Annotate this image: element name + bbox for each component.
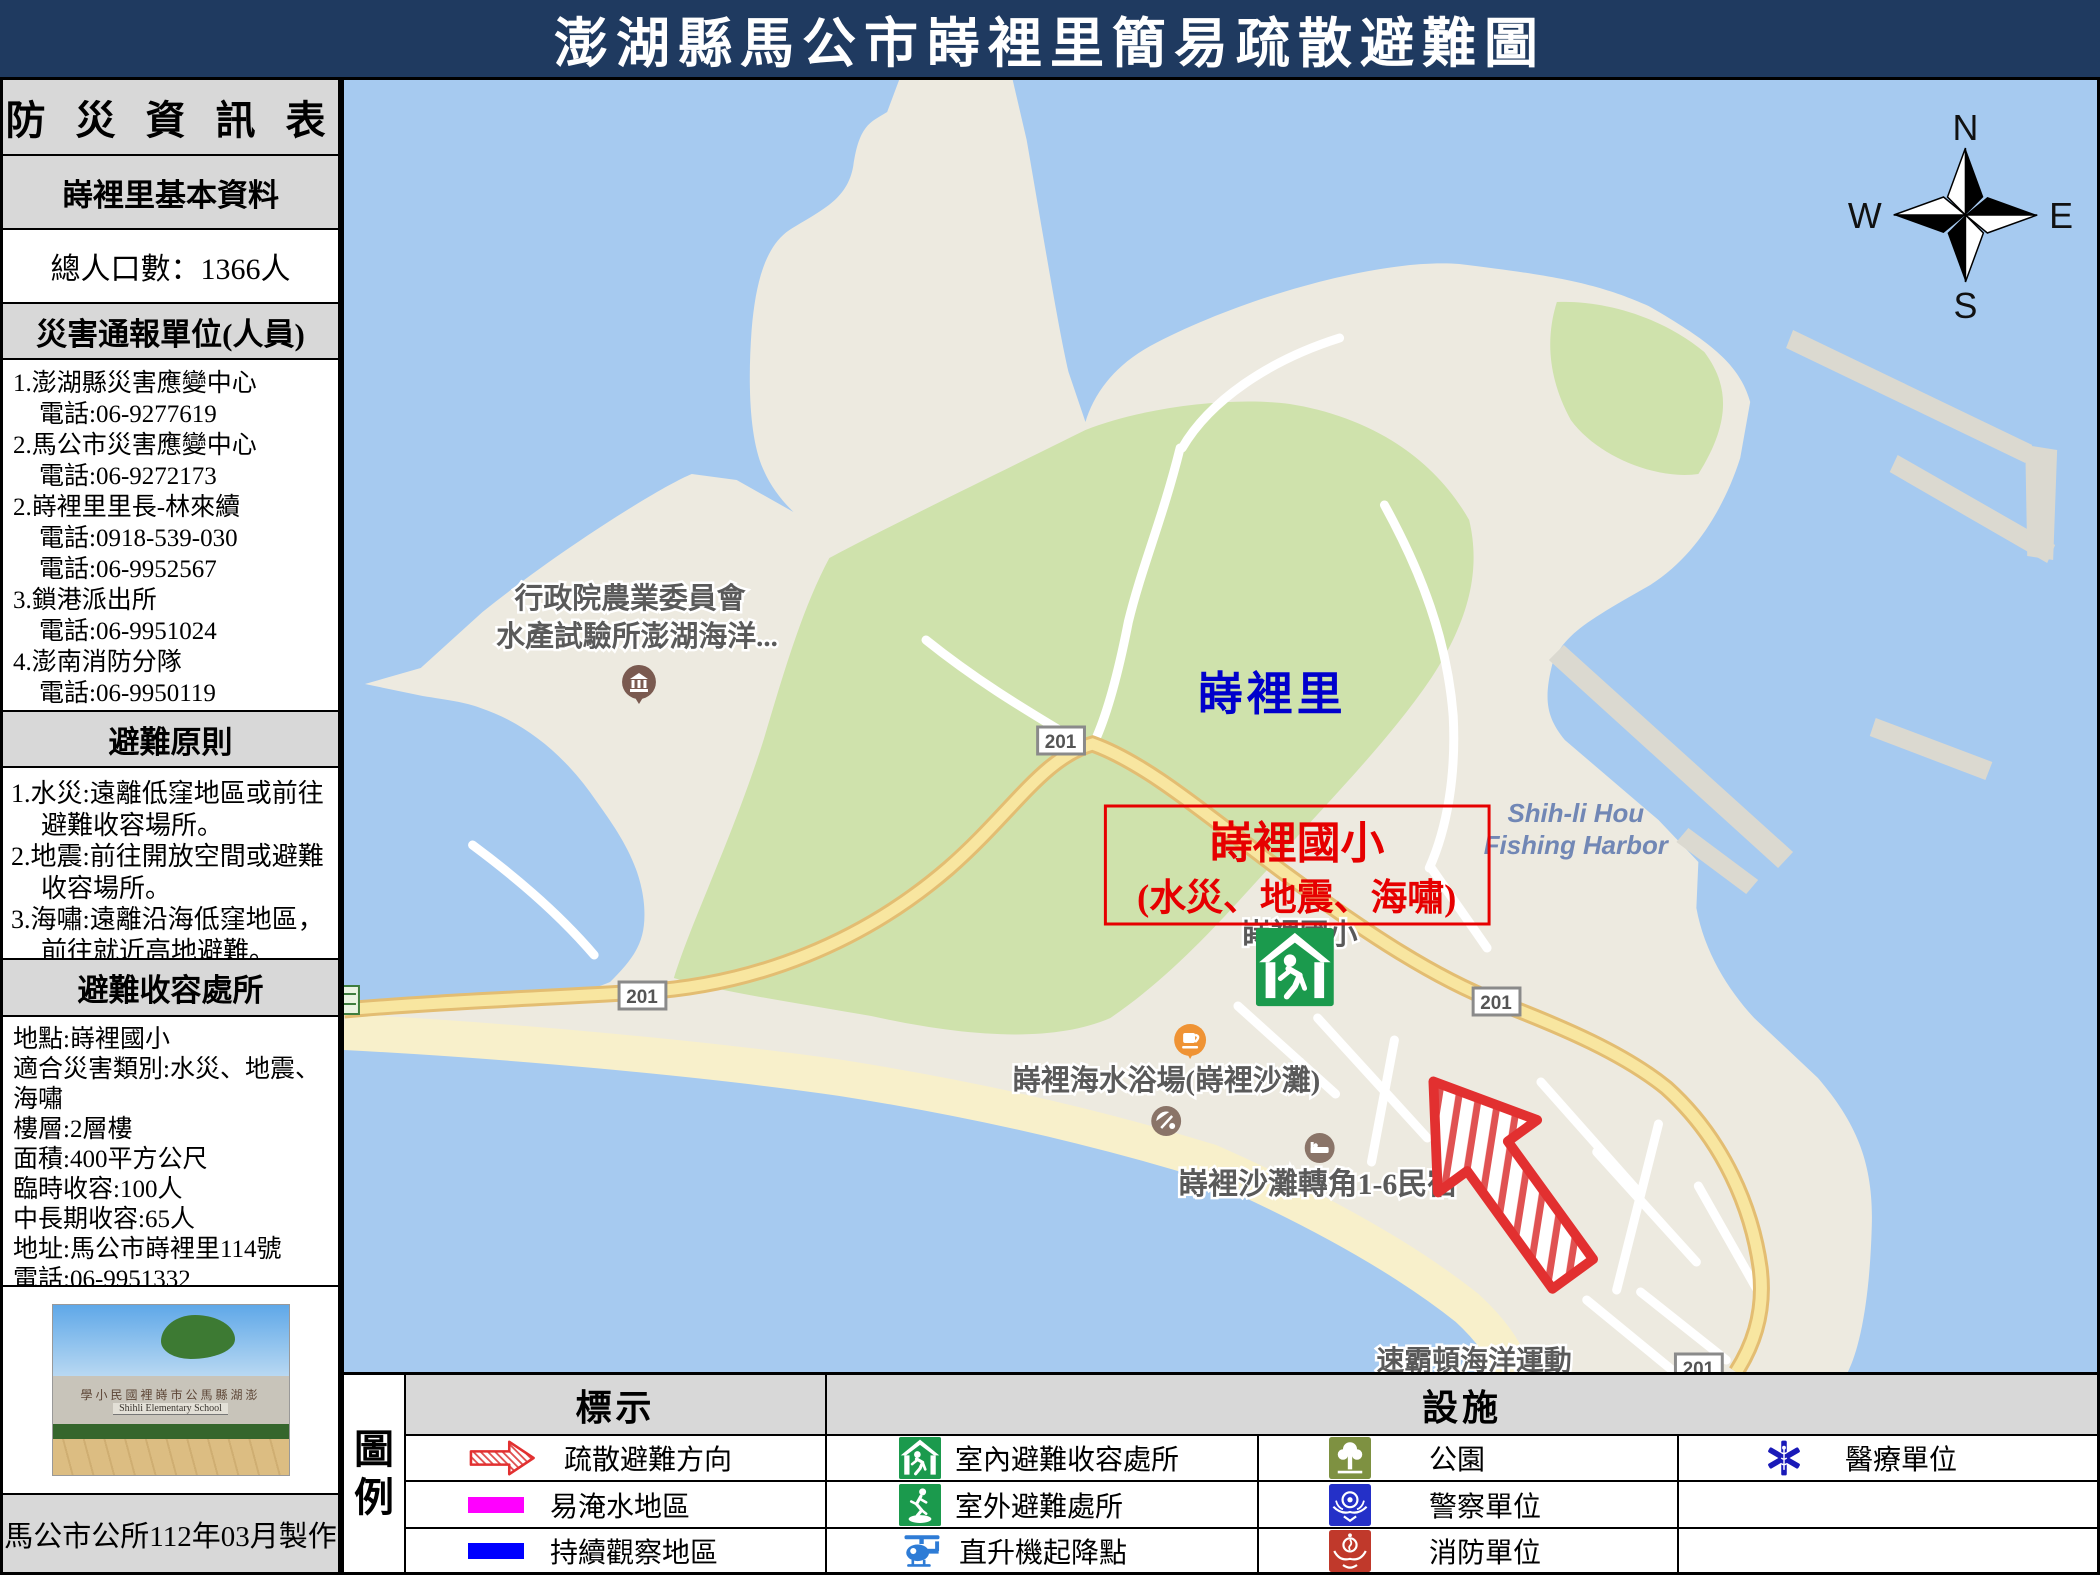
map-canvas: 201 201 201 201 bbox=[344, 80, 2097, 1372]
list-item: 地址:馬公市嵵裡里114號 bbox=[13, 1235, 334, 1265]
svg-text:201: 201 bbox=[1480, 993, 1512, 1014]
principles-list: 1.水災:遠離低窪地區或前往避難收容場所。 2.地震:前往開放空間或避難收容場所… bbox=[3, 768, 338, 958]
compass-e: E bbox=[2049, 195, 2073, 236]
park-icon bbox=[1329, 1437, 1371, 1479]
legend-label: 室外避難處所 bbox=[955, 1485, 1123, 1525]
list-item: 電話:06-9951024 bbox=[13, 616, 332, 647]
legend-empty-cell bbox=[1679, 1482, 2097, 1527]
svg-text:201: 201 bbox=[1045, 732, 1077, 753]
harbor-label-line1: Shih-li Hou bbox=[1507, 800, 1644, 828]
legend-label: 公園 bbox=[1429, 1438, 1485, 1478]
photo-hedge bbox=[53, 1424, 289, 1439]
legend-row-watch-zone: 持續觀察地區 bbox=[406, 1529, 825, 1572]
road-shield: 201 bbox=[619, 982, 666, 1009]
list-item: 臨時收容:100人 bbox=[13, 1175, 334, 1205]
legend-title-char: 例 bbox=[354, 1474, 394, 1522]
fire-dept-icon bbox=[1329, 1530, 1371, 1572]
fisheries-label-line2: 水產試驗所澎湖海洋... bbox=[496, 620, 778, 653]
legend-row-outdoor-shelter: 室外避難處所 bbox=[827, 1482, 1257, 1527]
legend-title-char: 圖 bbox=[354, 1426, 394, 1474]
school-photo-cell: 學小民國裡嵵市公馬縣湖澎 Shihli Elementary School bbox=[3, 1287, 338, 1493]
village-label: 嵵裡里 bbox=[1197, 669, 1346, 720]
legend-title: 圖 例 bbox=[344, 1375, 404, 1572]
guesthouse-poi-icon bbox=[1305, 1133, 1335, 1163]
list-item: 電話:06-9277619 bbox=[13, 399, 332, 430]
beach-label: 嵵裡海水浴場(嵵裡沙灘) bbox=[1012, 1064, 1320, 1097]
shelter-header: 避難收容處所 bbox=[3, 960, 338, 1015]
legend-row-helipad: 直升機起降點 bbox=[827, 1529, 1257, 1572]
list-item: 電話:06-9950119 bbox=[13, 678, 332, 709]
legend-label: 室內避難收容處所 bbox=[955, 1438, 1179, 1478]
legend-row-fire: 消防單位 bbox=[1259, 1529, 1677, 1572]
legend-row-indoor-shelter: 室內避難收容處所 bbox=[827, 1436, 1257, 1480]
principles-header: 避難原則 bbox=[3, 712, 338, 766]
school-photo: 學小民國裡嵵市公馬縣湖澎 Shihli Elementary School bbox=[52, 1304, 290, 1476]
marks-header: 標示 bbox=[406, 1375, 825, 1434]
legend-table: 圖 例 標示 設施 疏散避難方向 室內避難收容處所 公園 醫療單位 易淹水地區 bbox=[341, 1372, 2100, 1575]
indoor-shelter-icon bbox=[1256, 928, 1334, 1006]
publisher-note: 馬公市公所112年03月製作 bbox=[3, 1495, 338, 1572]
basic-info-header: 嵵裡里基本資料 bbox=[3, 156, 338, 228]
list-item: 2.嵵裡里里長-林來續 bbox=[13, 492, 332, 523]
list-item: 3.海嘯:遠離沿海低窪地區，前往就近高地避難。 bbox=[11, 904, 334, 967]
shelter-details: 地點:嵵裡國小 適合災害類別:水災、地震、海嘯 樓層:2層樓 面積:400平方公… bbox=[3, 1017, 338, 1285]
list-item: 適合災害類別:水災、地震、海嘯 bbox=[13, 1055, 334, 1115]
police-icon bbox=[1329, 1484, 1371, 1526]
title-bar: 澎湖縣馬公市嵵裡里簡易疏散避難圖 bbox=[0, 0, 2100, 80]
list-item: 電話:06-9952567 bbox=[13, 554, 332, 585]
legend-empty-cell bbox=[1679, 1529, 2097, 1572]
bnb-label: 嵵裡沙灘轉角1-6民宿 bbox=[1178, 1167, 1457, 1201]
harbor-label-line2: Fishing Harbor bbox=[1484, 832, 1670, 860]
indoor-shelter-icon bbox=[899, 1437, 941, 1479]
photo-pavement bbox=[53, 1439, 289, 1475]
list-item: 2.地震:前往開放空間或避難收容場所。 bbox=[11, 841, 334, 904]
map-mini-label bbox=[344, 986, 359, 1014]
list-item: 3.鎖港派出所 bbox=[13, 585, 332, 616]
legend-label: 消防單位 bbox=[1429, 1531, 1541, 1571]
road-shield: 201 bbox=[1038, 727, 1085, 754]
watch-zone-swatch bbox=[468, 1543, 524, 1559]
evacuation-arrow-icon bbox=[468, 1438, 538, 1478]
marine-label: 速霸頓海洋運動 bbox=[1377, 1344, 1572, 1372]
info-panel: 防 災 資 訊 表 嵵裡里基本資料 總人口數：1366人 災害通報單位(人員) … bbox=[0, 77, 341, 1575]
legend-row-park: 公園 bbox=[1259, 1436, 1677, 1480]
legend-label: 警察單位 bbox=[1429, 1485, 1541, 1525]
compass-s: S bbox=[1953, 285, 1977, 326]
list-item: 2.馬公市災害應變中心 bbox=[13, 430, 332, 461]
list-item: 1.水災:遠離低窪地區或前往避難收容場所。 bbox=[11, 778, 334, 841]
map-area: 201 201 201 201 bbox=[341, 77, 2100, 1375]
legend-row-evacuation-direction: 疏散避難方向 bbox=[406, 1436, 825, 1480]
list-item: 電話:06-9272173 bbox=[13, 461, 332, 492]
list-item: 樓層:2層樓 bbox=[13, 1115, 334, 1145]
list-item: 電話:0918-539-030 bbox=[13, 523, 332, 554]
photo-school-wall: 學小民國裡嵵市公馬縣湖澎 Shihli Elementary School bbox=[53, 1376, 289, 1424]
road-shield: 201 bbox=[1675, 1354, 1722, 1372]
evacuation-map-poster: 澎湖縣馬公市嵵裡里簡易疏散避難圖 防 災 資 訊 表 嵵裡里基本資料 總人口數：… bbox=[0, 0, 2100, 1575]
school-callout-line2: (水災、地震、海嘯) bbox=[1137, 877, 1456, 919]
outdoor-shelter-icon bbox=[899, 1484, 941, 1526]
info-panel-title: 防 災 資 訊 表 bbox=[3, 80, 338, 154]
legend-label: 直升機起降點 bbox=[959, 1531, 1127, 1571]
school-sign-zh: 學小民國裡嵵市公馬縣湖澎 bbox=[80, 1386, 260, 1403]
beach-poi-icon bbox=[1151, 1106, 1181, 1136]
list-item: 1.澎湖縣災害應變中心 bbox=[13, 368, 332, 399]
svg-text:201: 201 bbox=[626, 987, 658, 1008]
notify-units-list: 1.澎湖縣災害應變中心 電話:06-9277619 2.馬公市災害應變中心 電話… bbox=[3, 360, 338, 710]
legend-row-medical: 醫療單位 bbox=[1679, 1436, 2097, 1480]
legend-row-police: 警察單位 bbox=[1259, 1482, 1677, 1527]
medical-icon bbox=[1765, 1439, 1803, 1477]
legend-label: 醫療單位 bbox=[1845, 1438, 1957, 1478]
list-item: 地點:嵵裡國小 bbox=[13, 1025, 334, 1055]
list-item: 面積:400平方公尺 bbox=[13, 1145, 334, 1175]
school-sign-en: Shihli Elementary School bbox=[113, 1403, 228, 1415]
legend-label: 持續觀察地區 bbox=[550, 1531, 718, 1571]
school-callout-line1: 嵵裡國小 bbox=[1209, 819, 1384, 868]
page-title: 澎湖縣馬公市嵵裡里簡易疏散避難圖 bbox=[554, 0, 1546, 78]
population-value: 總人口數：1366人 bbox=[3, 230, 338, 302]
compass-w: W bbox=[1848, 195, 1882, 236]
legend-row-flood-zone: 易淹水地區 bbox=[406, 1482, 825, 1527]
compass-n: N bbox=[1952, 107, 1978, 148]
facilities-header: 設施 bbox=[827, 1375, 2097, 1434]
legend-label: 疏散避難方向 bbox=[564, 1438, 732, 1478]
notify-units-header: 災害通報單位(人員) bbox=[3, 304, 338, 358]
svg-text:201: 201 bbox=[1683, 1359, 1715, 1372]
legend-label: 易淹水地區 bbox=[550, 1485, 690, 1525]
list-item: 中長期收容:65人 bbox=[13, 1205, 334, 1235]
list-item: 4.澎南消防分隊 bbox=[13, 647, 332, 678]
flood-zone-swatch bbox=[468, 1497, 524, 1513]
fisheries-label-line1: 行政院農業委員會 bbox=[513, 582, 746, 615]
road-shield: 201 bbox=[1473, 988, 1520, 1015]
helicopter-icon bbox=[899, 1530, 945, 1572]
